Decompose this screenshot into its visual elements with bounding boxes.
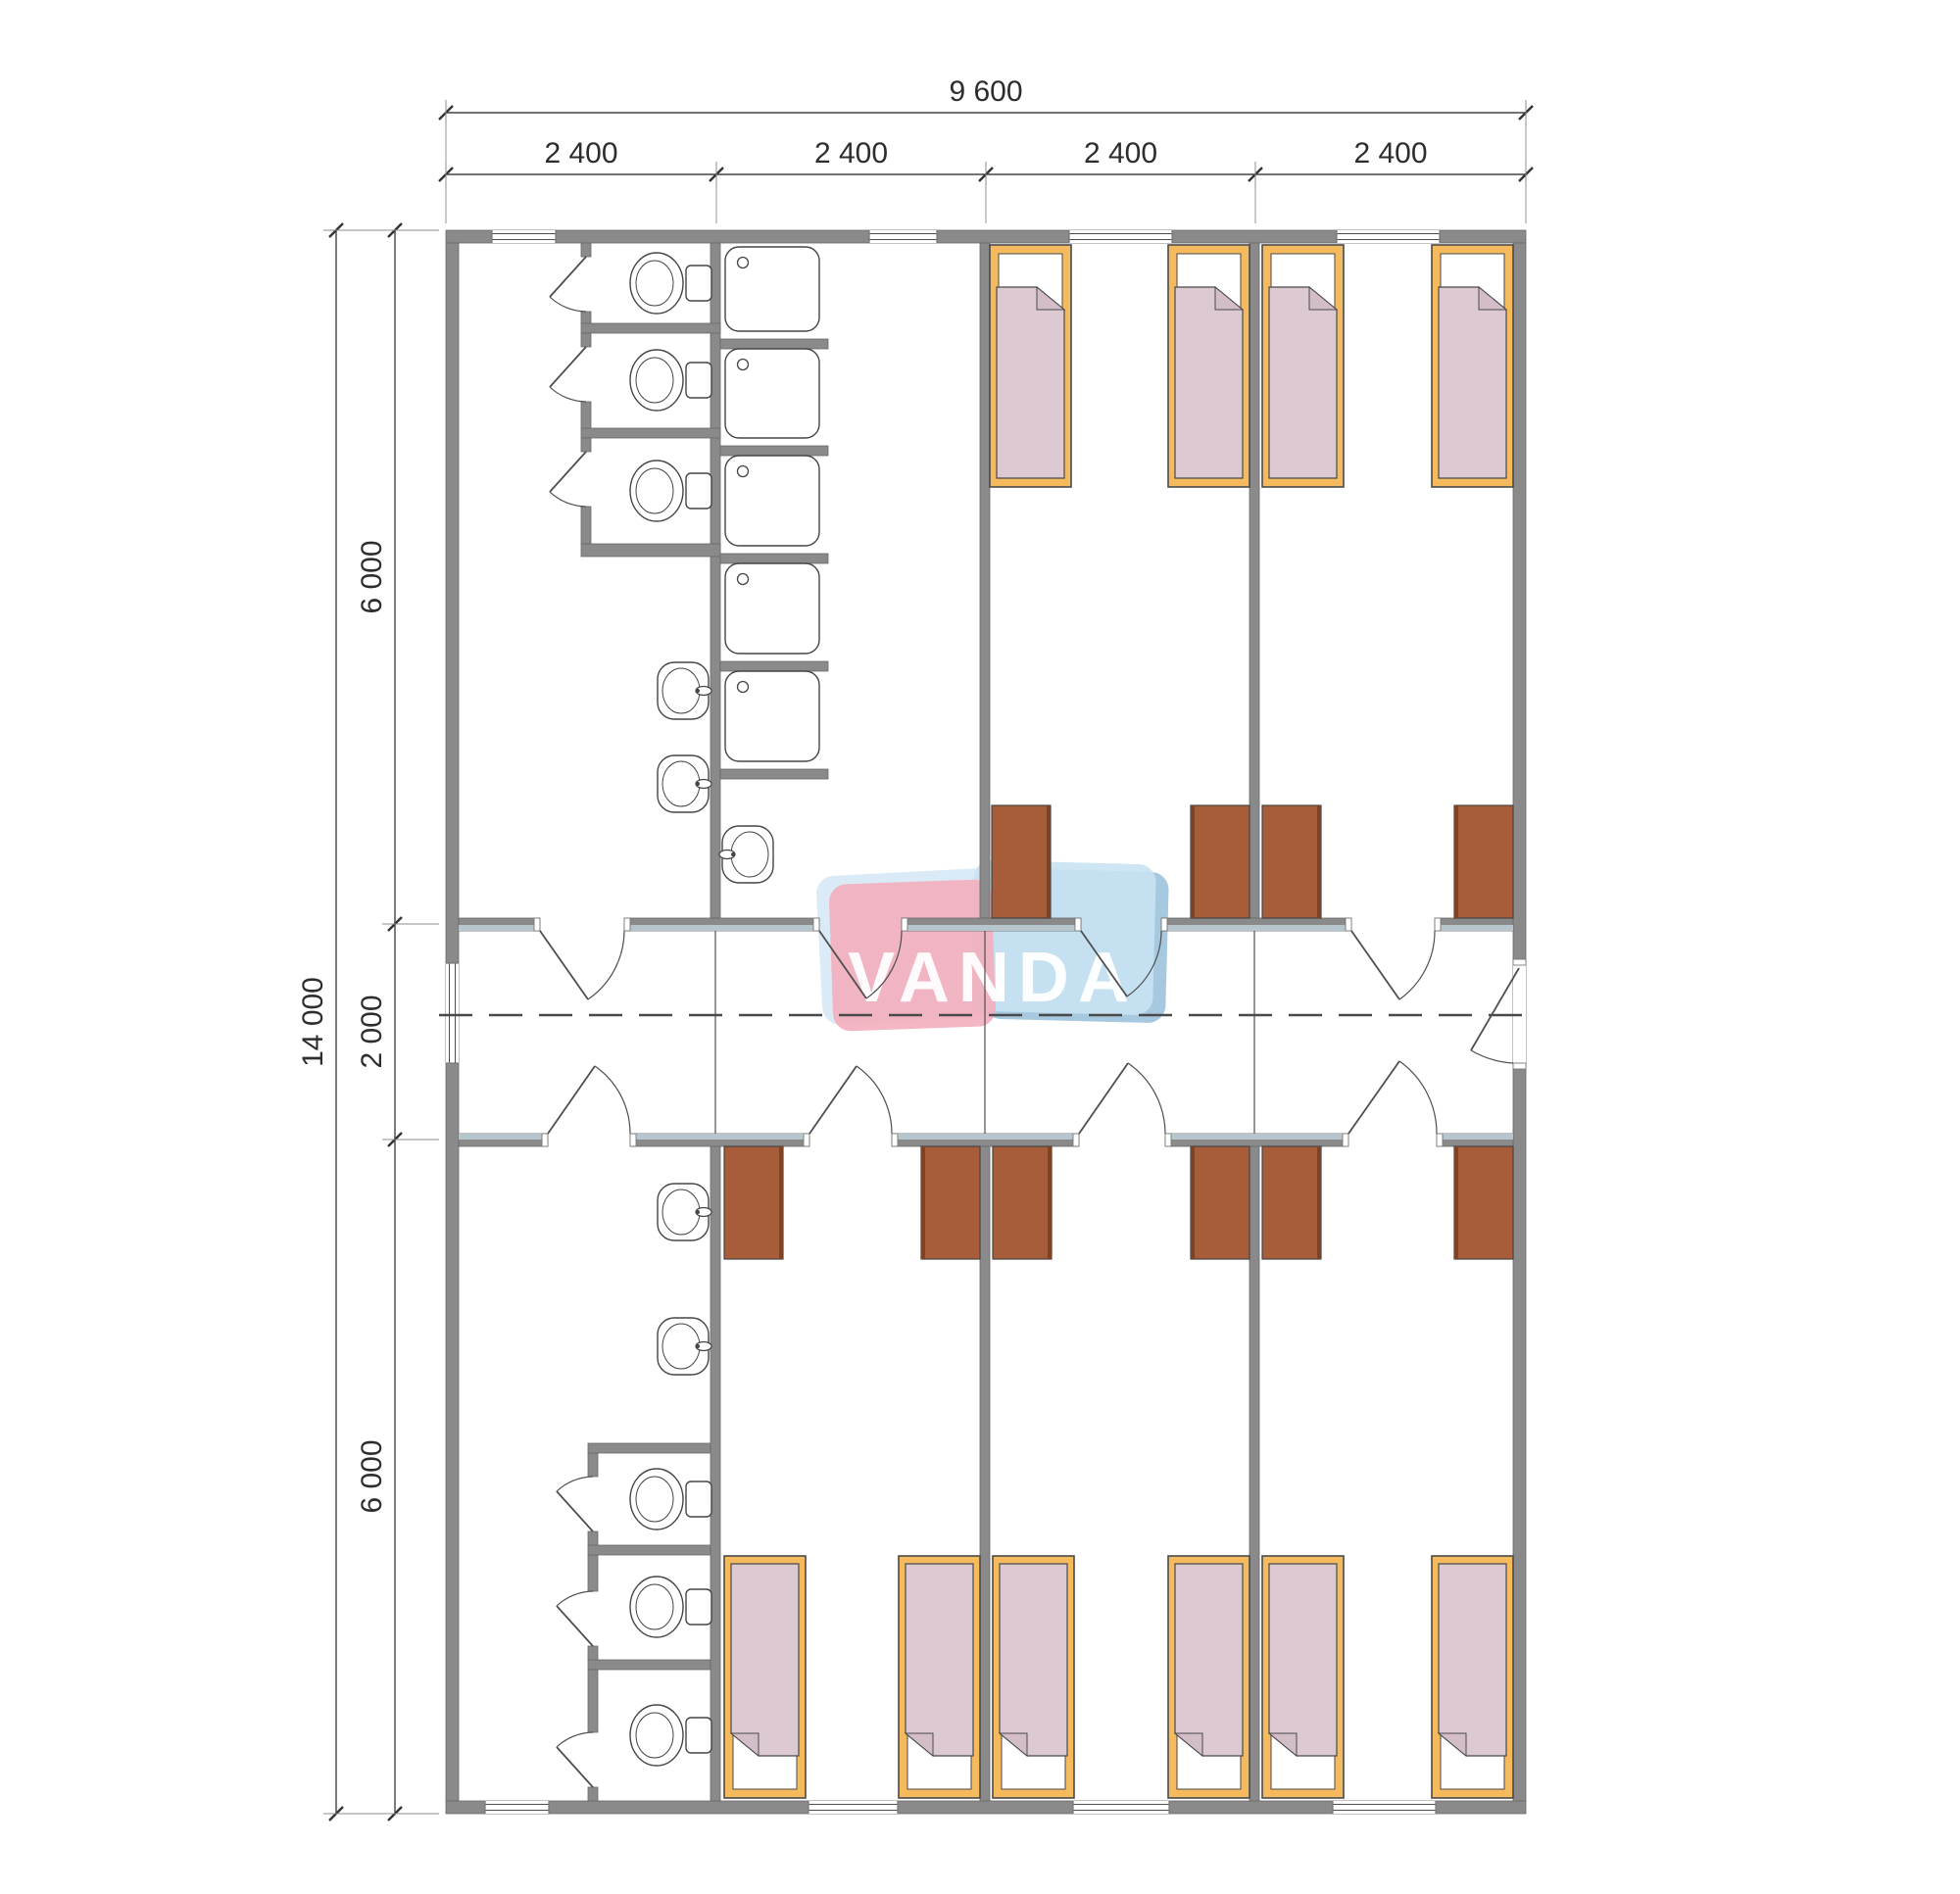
- interior-wall: [581, 312, 591, 323]
- cabinet-door-edge: [921, 1146, 925, 1259]
- door-swing-arc: [557, 1732, 593, 1747]
- door-jamb: [1161, 918, 1167, 931]
- cabinet-door-edge: [1191, 805, 1195, 918]
- door-jamb: [1075, 918, 1081, 931]
- wardrobe-cabinet: [724, 1146, 783, 1259]
- wardrobe-cabinet: [1454, 805, 1513, 918]
- door-swing-arc: [1471, 1050, 1513, 1063]
- door-jamb: [624, 918, 630, 931]
- door-leaf: [1348, 1061, 1399, 1134]
- bed-blanket: [1000, 1564, 1067, 1756]
- toilet: [630, 1705, 711, 1766]
- corridor-wall-face: [624, 925, 819, 931]
- sink-faucet-handle: [731, 852, 735, 856]
- door-leaf: [557, 1491, 593, 1531]
- room-door: [548, 1066, 630, 1134]
- door-jamb: [1435, 918, 1441, 931]
- door-leaf: [550, 452, 586, 492]
- interior-wall: [581, 507, 591, 544]
- cabinet-door-edge: [779, 1146, 783, 1259]
- toilet-bowl: [630, 461, 683, 521]
- interior-wall: [1249, 1146, 1259, 1801]
- sink: [658, 662, 711, 719]
- shower-drain: [738, 466, 749, 477]
- door-jamb: [1073, 1134, 1079, 1146]
- cabinet-door-edge: [1047, 805, 1051, 918]
- dimension-label: 9 600: [949, 75, 1022, 108]
- shower-drain: [738, 682, 749, 693]
- wc-stall-door: [557, 1591, 593, 1646]
- interior-wall: [720, 339, 828, 349]
- entrance-door: [446, 963, 459, 1063]
- sink: [719, 826, 773, 883]
- door-jamb: [902, 918, 907, 931]
- dimension-label: 6 000: [356, 540, 388, 613]
- toilet-bowl: [630, 1705, 683, 1766]
- toilet-tank: [686, 1718, 711, 1753]
- toilet: [630, 1577, 711, 1637]
- dimension-label: 2 000: [356, 995, 388, 1068]
- bed-blanket: [731, 1564, 799, 1756]
- door-leaf: [557, 1747, 593, 1787]
- bed-blanket: [1439, 287, 1506, 478]
- floor-plan-drawing: VANDA9 6002 4002 4002 4002 40014 0006 00…: [0, 0, 1960, 1894]
- wardrobe-cabinet: [992, 805, 1051, 918]
- sink-faucet-handle: [696, 689, 700, 693]
- bed-blanket: [1439, 1564, 1506, 1756]
- window: [1337, 230, 1440, 243]
- window: [869, 230, 937, 243]
- wc-stall-door: [557, 1477, 593, 1531]
- interior-wall: [581, 243, 591, 257]
- corridor-wall-face: [902, 925, 1081, 931]
- interior-wall: [588, 1545, 710, 1555]
- bed-blanket: [906, 1564, 973, 1756]
- wc-stall-door: [550, 257, 586, 312]
- toilet-bowl: [630, 350, 683, 411]
- bed: [1168, 1556, 1249, 1798]
- cabinet-door-edge: [1191, 1146, 1195, 1259]
- door-leaf: [550, 347, 586, 387]
- cabinet-door-edge: [1048, 1146, 1052, 1259]
- door-jamb: [892, 1134, 898, 1146]
- interior-wall: [720, 769, 828, 779]
- bed-blanket: [1175, 287, 1243, 478]
- cabinet-door-edge: [1317, 1146, 1321, 1259]
- interior-wall: [980, 1146, 990, 1801]
- toilet: [630, 350, 711, 411]
- interior-wall: [581, 544, 720, 557]
- door-swing-arc: [557, 1591, 593, 1606]
- floor-plan-svg: VANDA9 6002 4002 4002 4002 40014 0006 00…: [0, 0, 1960, 1894]
- wardrobe-cabinet: [1191, 1146, 1249, 1259]
- door-jamb: [804, 1134, 809, 1146]
- wc-stall-door: [557, 1732, 593, 1787]
- door-swing-arc: [557, 1477, 593, 1491]
- window: [485, 1801, 549, 1814]
- wardrobe-cabinet: [1454, 1146, 1513, 1259]
- toilet-tank: [686, 266, 711, 301]
- door-swing-arc: [550, 297, 586, 312]
- sink-faucet-handle: [696, 1344, 700, 1348]
- toilet-tank: [686, 363, 711, 398]
- cabinet-door-edge: [1317, 805, 1321, 918]
- door-leaf: [1351, 931, 1399, 999]
- door-swing-arc: [550, 492, 586, 507]
- interior-wall: [588, 1443, 710, 1453]
- bed: [993, 1556, 1074, 1798]
- door-swing-arc: [1399, 1061, 1437, 1134]
- interior-wall: [720, 554, 828, 563]
- shower-tray: [725, 563, 819, 654]
- interior-wall: [581, 428, 720, 438]
- door-jamb: [1165, 1134, 1171, 1146]
- interior-wall: [581, 438, 591, 452]
- interior-wall: [588, 1660, 710, 1670]
- interior-wall: [588, 1787, 598, 1801]
- shower-tray: [725, 671, 819, 761]
- corridor-wall-face: [1437, 1134, 1513, 1140]
- corridor-wall-face: [459, 925, 540, 931]
- sink: [658, 1318, 711, 1375]
- corridor-wall-face: [1161, 925, 1351, 931]
- bed-blanket: [1175, 1564, 1243, 1756]
- door-leaf: [550, 257, 586, 297]
- toilet-bowl: [630, 1469, 683, 1530]
- door-leaf: [809, 1066, 857, 1134]
- room-door: [1348, 1061, 1437, 1134]
- shower-tray: [725, 349, 819, 438]
- interior-wall: [588, 1531, 598, 1545]
- door-swing-arc: [1128, 1063, 1165, 1134]
- room-door: [809, 1066, 892, 1134]
- interior-wall: [581, 323, 720, 333]
- sink: [658, 755, 711, 812]
- interior-wall: [588, 1555, 598, 1591]
- wc-stall-door: [550, 347, 586, 402]
- interior-wall: [581, 333, 591, 347]
- wc-stall-door: [550, 452, 586, 507]
- door-swing-arc: [588, 931, 624, 999]
- door-jamb: [534, 918, 540, 931]
- shower-tray: [725, 456, 819, 546]
- corridor-wall-face: [459, 1134, 548, 1140]
- toilet-bowl: [630, 253, 683, 314]
- door-leaf: [1079, 1063, 1128, 1134]
- dimension-label: 2 400: [814, 137, 888, 170]
- dimension-label: 2 400: [544, 137, 617, 170]
- shower-drain: [738, 574, 749, 585]
- interior-wall: [720, 661, 828, 671]
- toilet: [630, 461, 711, 521]
- bed: [1168, 245, 1249, 487]
- bed: [1432, 245, 1513, 487]
- door-swing-arc: [857, 1066, 892, 1134]
- interior-wall: [581, 402, 591, 428]
- bed: [1262, 1556, 1344, 1798]
- door-swing-arc: [595, 1066, 630, 1134]
- toilet-tank: [686, 1589, 711, 1625]
- shower-drain: [738, 258, 749, 268]
- bed: [990, 245, 1071, 487]
- door-leaf: [540, 931, 588, 999]
- corridor-wall-face: [630, 1134, 809, 1140]
- bed: [1262, 245, 1344, 487]
- door-jamb: [1346, 918, 1351, 931]
- bed: [1432, 1556, 1513, 1798]
- window: [1073, 1801, 1169, 1814]
- cabinet-door-edge: [1454, 805, 1458, 918]
- interior-wall: [588, 1670, 598, 1732]
- corridor-wall-face: [1435, 925, 1513, 931]
- corridor-wall-face: [1165, 1134, 1348, 1140]
- wardrobe-cabinet: [1262, 1146, 1321, 1259]
- wardrobe-cabinet: [1191, 805, 1249, 918]
- window: [1333, 1801, 1436, 1814]
- door-leaf: [557, 1606, 593, 1646]
- dimension-label: 14 000: [297, 977, 329, 1067]
- toilet: [630, 1469, 711, 1530]
- window: [1069, 230, 1172, 243]
- interior-wall: [980, 243, 990, 918]
- wardrobe-cabinet: [1262, 805, 1321, 918]
- interior-wall: [1249, 243, 1259, 918]
- interior-wall: [588, 1453, 598, 1477]
- fixtures: [630, 247, 819, 1766]
- interior-wall: [720, 446, 828, 456]
- door-jamb: [1343, 1134, 1348, 1146]
- cabinet-door-edge: [1454, 1146, 1458, 1259]
- window: [492, 230, 556, 243]
- door-jamb: [630, 1134, 636, 1146]
- corridor-wall-face: [892, 1134, 1079, 1140]
- shower-drain: [738, 360, 749, 370]
- bed-blanket: [1269, 1564, 1337, 1756]
- door-leaf: [1471, 968, 1519, 1050]
- door-jamb: [1513, 1063, 1526, 1069]
- sink-faucet-handle: [696, 782, 700, 786]
- bed-blanket: [1269, 287, 1337, 478]
- interior-wall: [710, 243, 720, 918]
- dimension-label: 2 400: [1084, 137, 1157, 170]
- door-leaf: [548, 1066, 595, 1134]
- bed: [724, 1556, 806, 1798]
- door-swing-arc: [1399, 931, 1435, 999]
- shower-tray: [725, 247, 819, 331]
- toilet-tank: [686, 1481, 711, 1517]
- bed: [899, 1556, 980, 1798]
- door-swing-arc: [550, 387, 586, 402]
- sink: [658, 1184, 711, 1240]
- toilet-bowl: [630, 1577, 683, 1637]
- toilet: [630, 253, 711, 314]
- door-jamb: [1437, 1134, 1443, 1146]
- room-door: [540, 931, 624, 999]
- room-door: [1351, 931, 1435, 999]
- interior-wall: [710, 1146, 720, 1801]
- floor-plan-page: VANDA9 6002 4002 4002 4002 40014 0006 00…: [0, 0, 1960, 1894]
- wardrobe-cabinet: [921, 1146, 980, 1259]
- dimension-label: 2 400: [1353, 137, 1427, 170]
- dimension-label: 6 000: [356, 1439, 388, 1513]
- interior-wall: [588, 1646, 598, 1660]
- wardrobe-cabinet: [993, 1146, 1052, 1259]
- door-jamb: [1513, 959, 1526, 965]
- door-jamb: [542, 1134, 548, 1146]
- toilet-tank: [686, 473, 711, 509]
- sink-faucet-handle: [696, 1210, 700, 1214]
- door-jamb: [813, 918, 819, 931]
- bed-blanket: [997, 287, 1064, 478]
- room-door: [1079, 1063, 1165, 1134]
- window: [808, 1801, 898, 1814]
